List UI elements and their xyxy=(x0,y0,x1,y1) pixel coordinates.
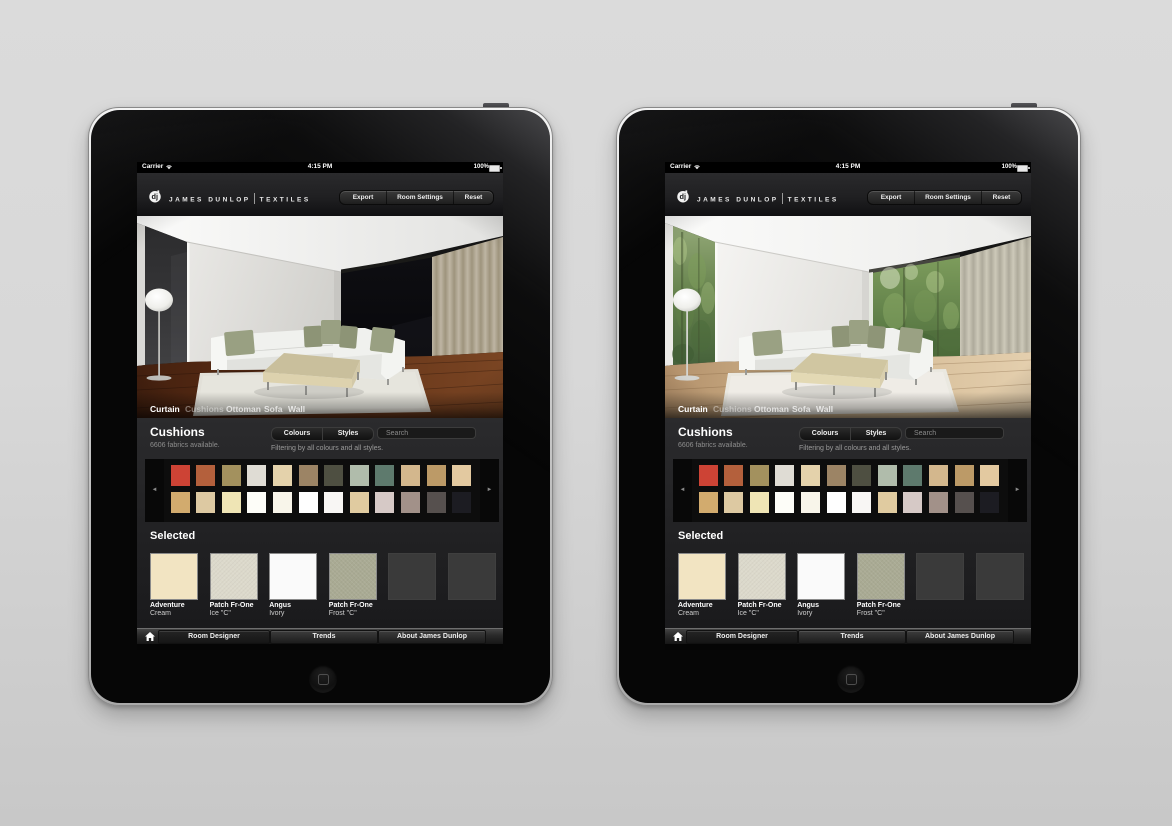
svg-text:Wall: Wall xyxy=(816,404,833,414)
svg-text:Ottoman: Ottoman xyxy=(226,404,261,414)
svg-text:Sofa: Sofa xyxy=(264,404,283,414)
svg-text:Curtain: Curtain xyxy=(678,404,708,414)
svg-text:Ottoman: Ottoman xyxy=(754,404,789,414)
svg-text:Wall: Wall xyxy=(288,404,305,414)
svg-text:Curtain: Curtain xyxy=(150,404,180,414)
svg-text:Cushions: Cushions xyxy=(713,404,752,414)
svg-text:dj: dj xyxy=(679,192,686,201)
svg-text:Sofa: Sofa xyxy=(792,404,811,414)
svg-text:dj: dj xyxy=(151,192,158,201)
svg-text:Cushions: Cushions xyxy=(185,404,224,414)
